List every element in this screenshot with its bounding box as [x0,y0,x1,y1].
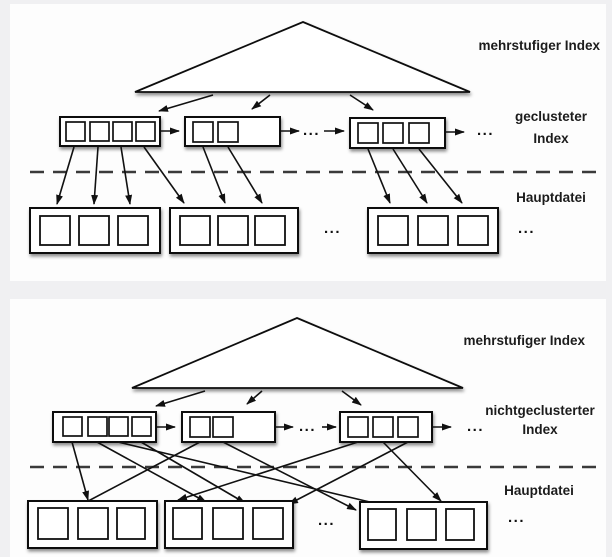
pyramid-to-index-arrows [156,391,361,406]
data-page [28,501,157,548]
index-page [350,118,445,148]
label-clustered-index-line2: Index [495,129,607,149]
label-nonclustered-index-line2: Index [470,420,610,440]
multilevel-index-pyramid [132,318,463,388]
ellipsis-index-row: ... [299,422,316,432]
ellipsis-index-row: ... [303,126,320,136]
data-page [368,208,498,253]
ellipsis-index-row: ... [467,422,484,432]
data-page [30,208,160,253]
ellipsis-index-row: ... [477,126,494,136]
index-page [182,412,275,442]
index-page [185,117,280,146]
label-mainfile: Hauptdatei [495,188,607,208]
ellipsis-data-row: ... [318,516,335,526]
index-page [60,117,160,146]
label-multilevel-index: mehrstufiger Index [440,36,600,56]
label-clustered-index-line1: geclusteter [495,107,607,127]
index-to-data-arrows [57,147,462,204]
data-page [170,208,298,253]
pyramid-to-index-arrows [159,95,373,111]
index-to-data-arrows [72,442,441,510]
label-multilevel-index: mehrstufiger Index [425,331,585,351]
ellipsis-data-row: ... [508,513,525,523]
data-page [165,501,293,548]
label-mainfile: Hauptdatei [483,481,595,501]
data-page [360,502,487,549]
diagram-canvas [0,0,612,557]
multilevel-index-pyramid [135,22,470,92]
index-page [53,412,156,442]
ellipsis-data-row: ... [324,224,341,234]
label-nonclustered-index-line1: nichtgeclusterter [470,401,610,421]
ellipsis-data-row: ... [518,224,535,234]
index-page [340,412,432,442]
